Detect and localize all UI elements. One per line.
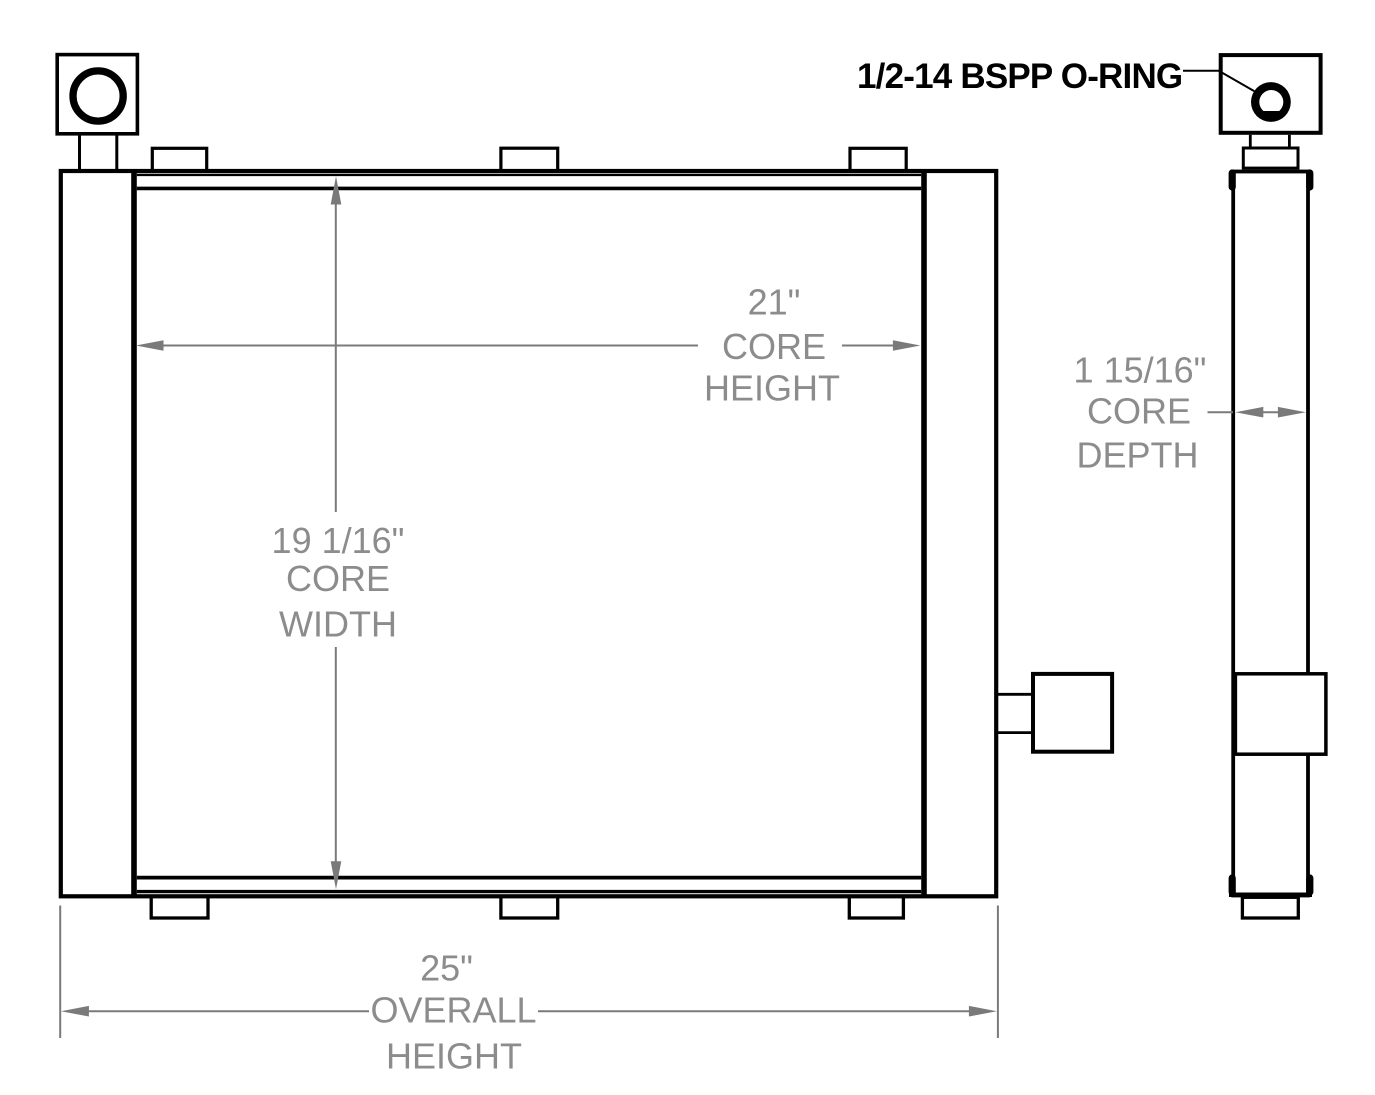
svg-text:HEIGHT: HEIGHT xyxy=(386,1036,522,1077)
svg-text:CORE: CORE xyxy=(1087,391,1191,432)
svg-text:WIDTH: WIDTH xyxy=(279,604,397,645)
svg-text:19 1/16": 19 1/16" xyxy=(272,520,405,561)
svg-text:21": 21" xyxy=(748,282,801,323)
svg-text:25": 25" xyxy=(420,948,473,989)
svg-text:HEIGHT: HEIGHT xyxy=(704,368,840,409)
svg-text:1 15/16": 1 15/16" xyxy=(1074,350,1207,391)
svg-text:CORE: CORE xyxy=(722,326,826,367)
svg-text:1/2-14 BSPP O-RING: 1/2-14 BSPP O-RING xyxy=(857,57,1182,96)
svg-text:OVERALL: OVERALL xyxy=(370,990,536,1031)
svg-text:CORE: CORE xyxy=(286,558,390,599)
svg-text:DEPTH: DEPTH xyxy=(1076,435,1198,476)
